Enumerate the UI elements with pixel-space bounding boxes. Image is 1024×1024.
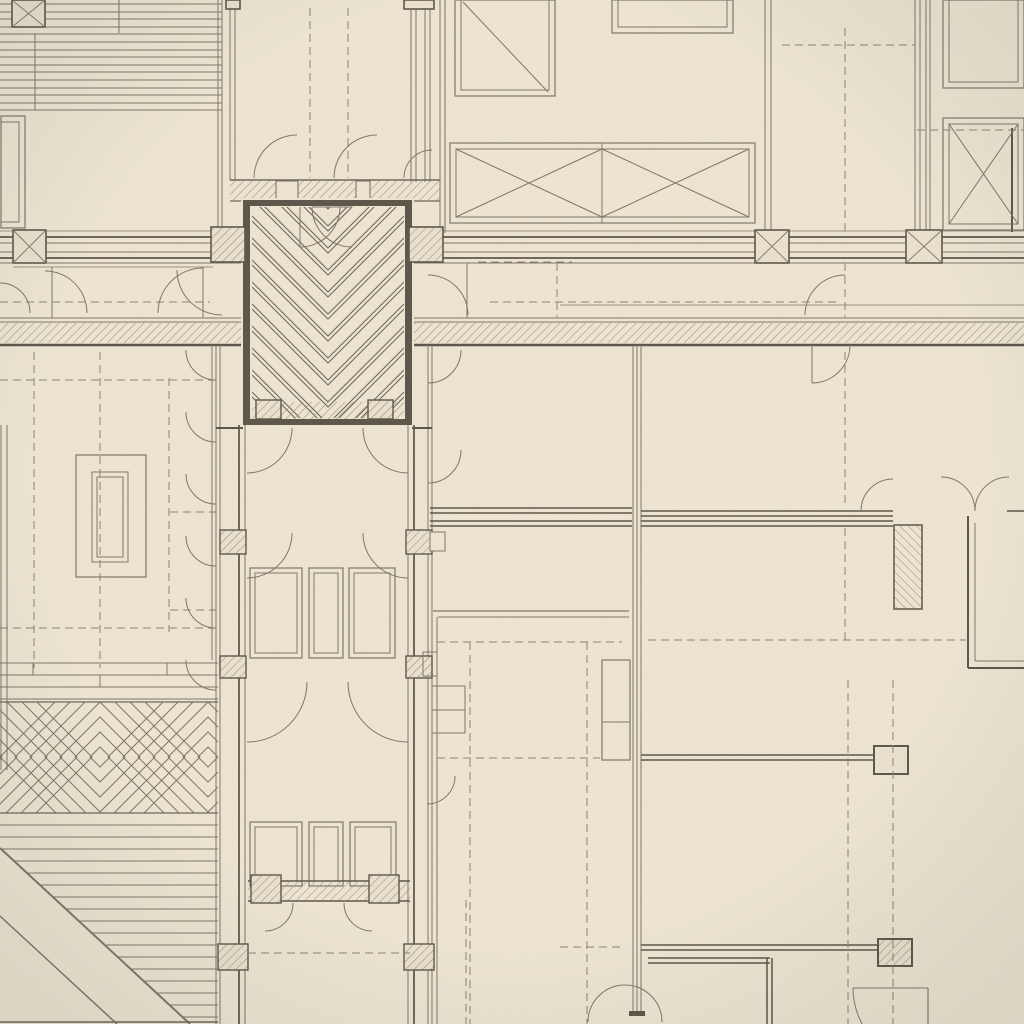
- blueprint-page: [0, 0, 1024, 1024]
- paper-vignette: [0, 0, 1024, 1024]
- floor-plan-drawing: [0, 0, 1024, 1024]
